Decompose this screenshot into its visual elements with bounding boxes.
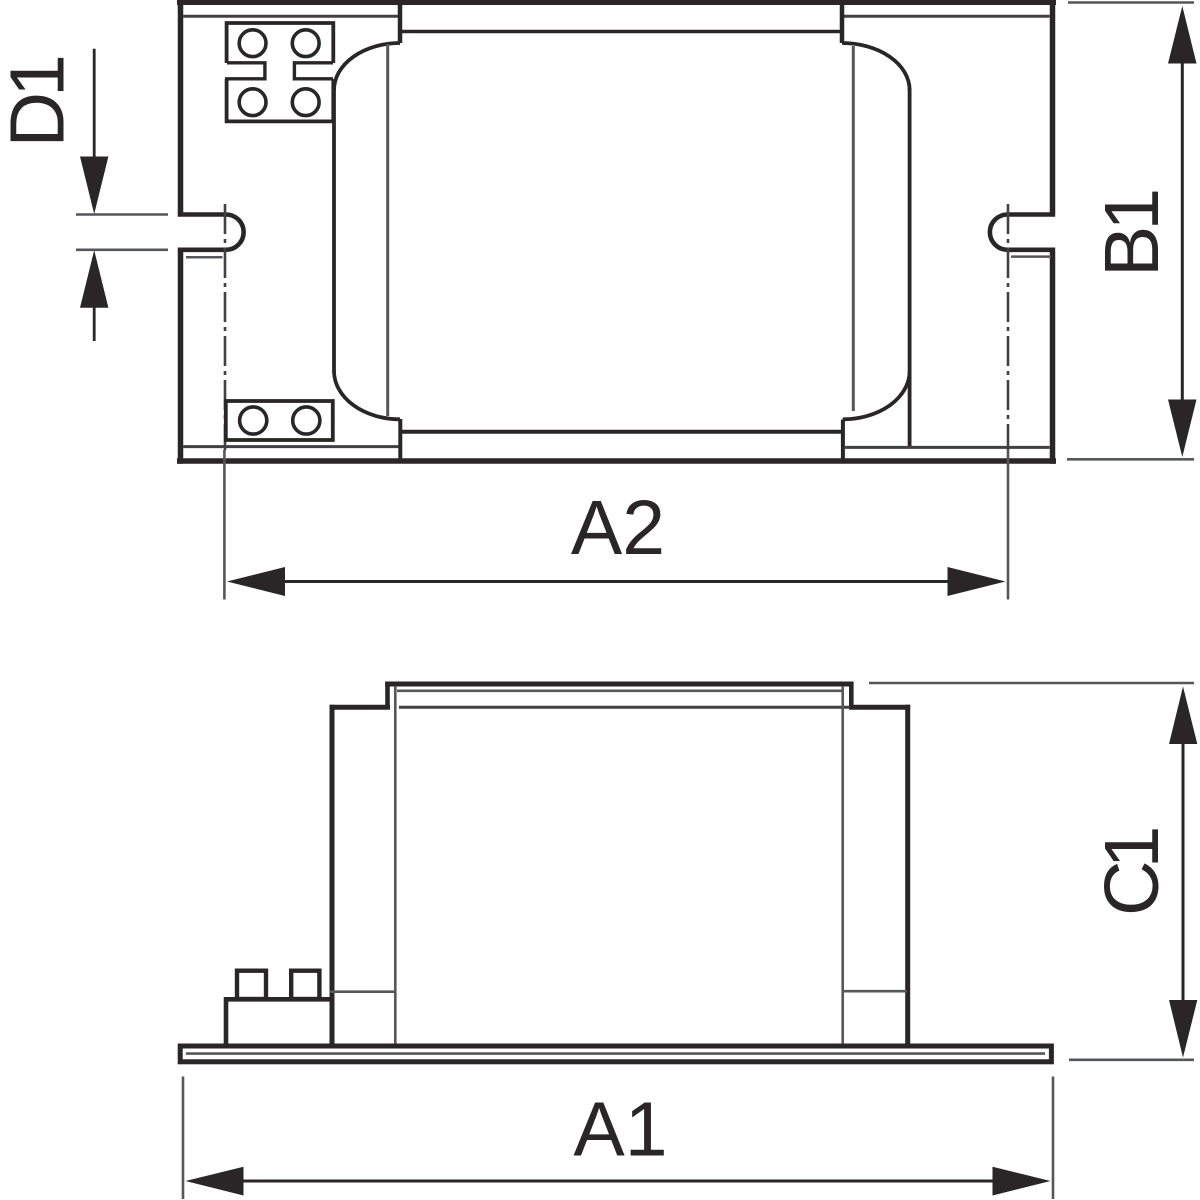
svg-text:C1: C1	[1089, 828, 1175, 916]
svg-text:A2: A2	[571, 485, 665, 571]
svg-text:D1: D1	[0, 57, 81, 148]
svg-text:A1: A1	[573, 1087, 667, 1173]
svg-text:B1: B1	[1089, 191, 1175, 277]
